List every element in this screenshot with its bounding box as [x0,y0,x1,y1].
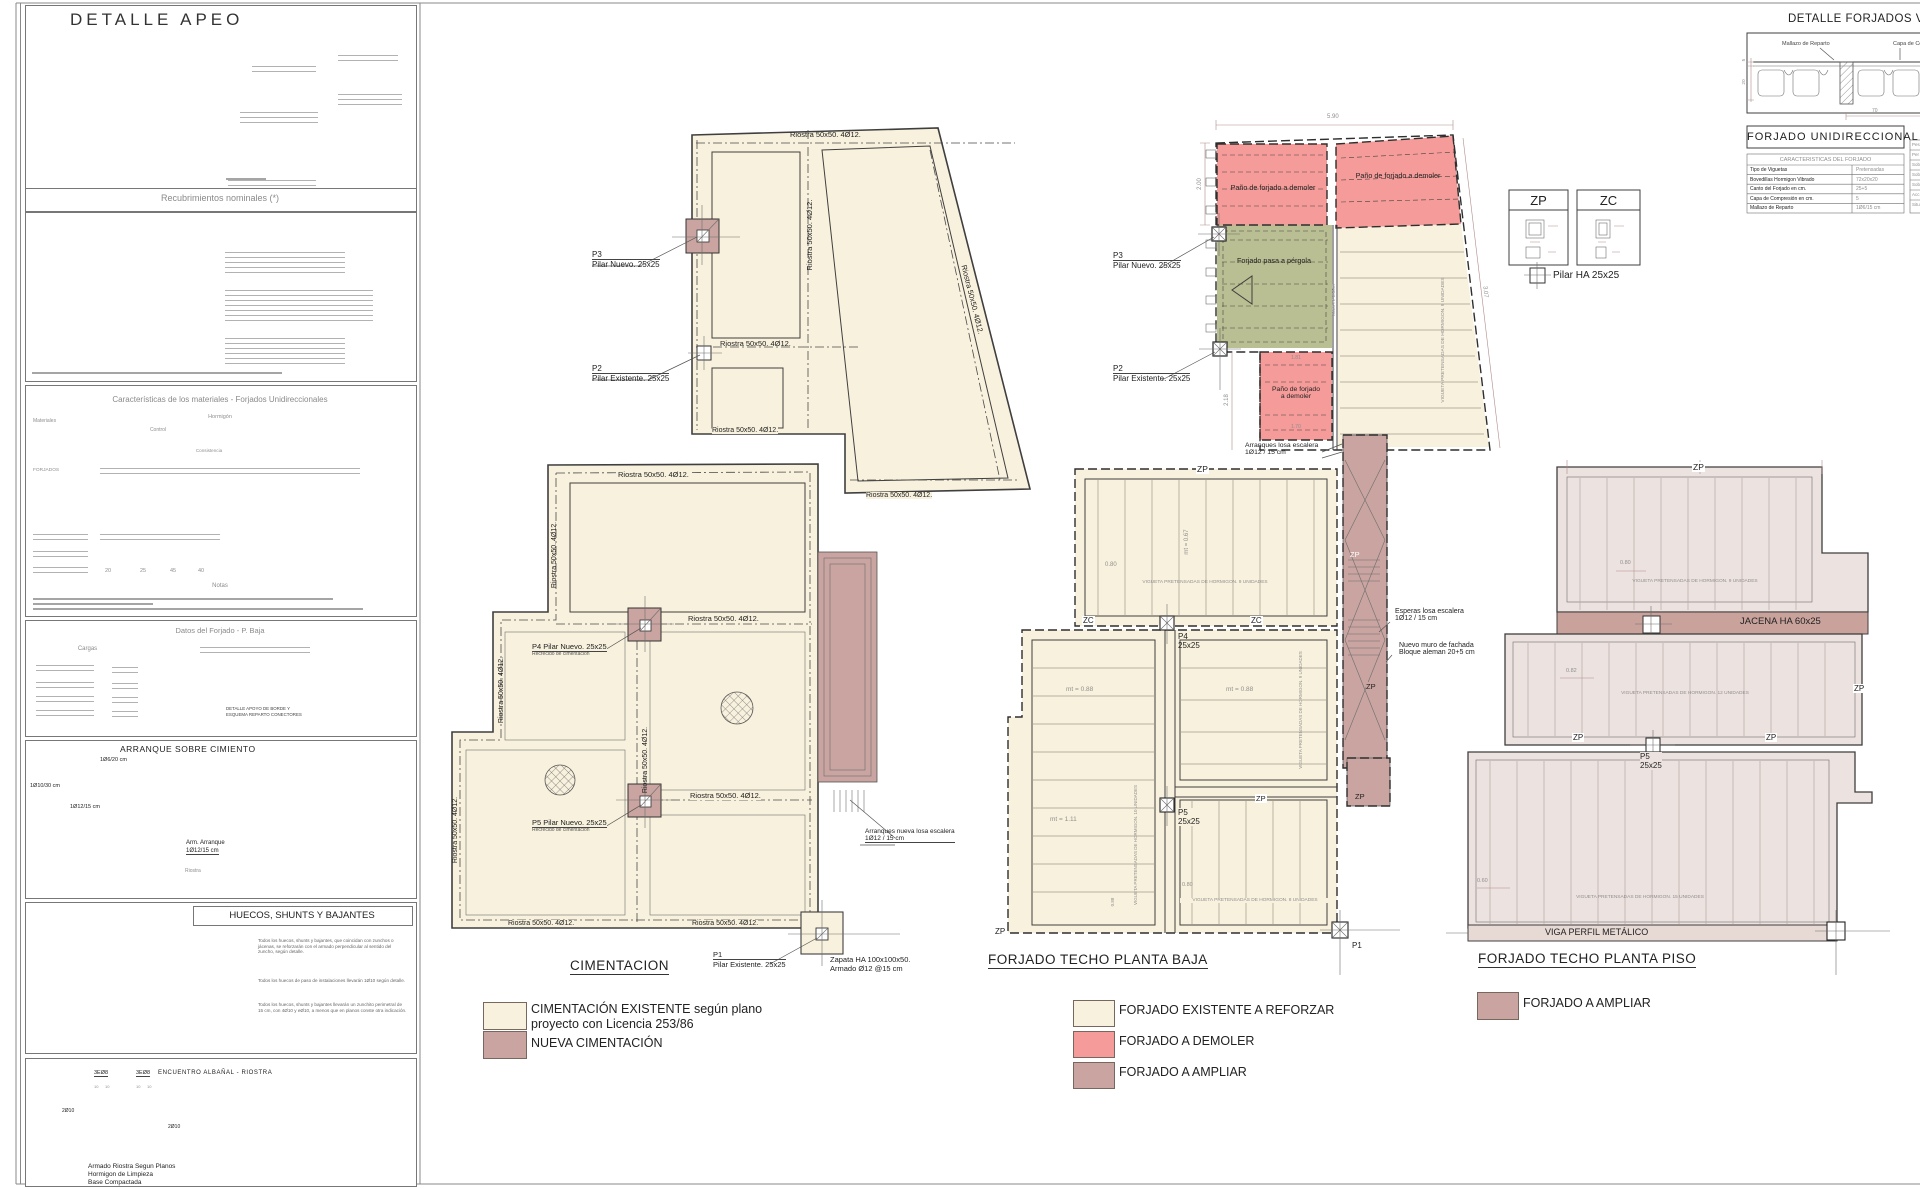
mt-label: mt = 0.88 [1066,686,1093,693]
legend-label: proyecto con Licencia 253/86 [531,1017,694,1031]
table-row-label: Tipo de Viguetas [1750,167,1787,173]
planta-piso-title: FORJADO TECHO PLANTA PISO [1478,951,1696,968]
illegible-cell [36,696,94,702]
pilar-id: P1 [713,950,786,959]
esperas-label: Esperas losa escalera 1Ø12 / 15 cm [1395,608,1464,622]
zp-marker: ZP [1853,684,1865,693]
detalle-apeo-title: DETALLE APEO [70,10,243,30]
table-row-label: Capa de Compresión en cm. [1750,196,1814,202]
pilar-id: P2 [592,364,669,373]
pilar-p2-label: P2 Pilar Existente. 25x25 [592,364,669,383]
pilar-desc: Pilar Nuevo. 25x25 [1113,260,1181,270]
riostra-label: Riostra 50x50. 4Ø12. [551,522,558,588]
zc-legend-title: ZC [1577,193,1640,208]
zp-marker: ZP [1255,794,1267,803]
encuentro-label: 3EØ8 [136,1070,150,1077]
legend-label: FORJADO A AMPLIAR [1119,1065,1247,1079]
pilar-p5-label: P5 Pilar Nuevo. 25x25 Recrecido de cimen… [532,818,607,833]
cargas-title: Cargas [30,646,145,652]
pilar-id: P4 [1178,632,1200,641]
zp-marker: ZP [994,927,1006,936]
legend-swatch-ampliar [1477,992,1519,1020]
arranque-label: 1Ø10/30 cm [30,783,60,789]
muro-fachada-label: Nuevo muro de fachada Bloque aleman 20+5… [1399,642,1475,656]
illegible-note [338,55,398,64]
pilar-p3-label: P3 Pilar Nuevo. 25x25 [1113,251,1181,270]
legend-label: FORJADO A DEMOLER [1119,1034,1254,1048]
legend-label: NUEVA CIMENTACIÓN [531,1036,663,1050]
planta-baja-lower [1008,435,1400,975]
cimentacion-lower-plan [452,464,900,966]
dim-label: 70 [1872,108,1878,114]
illegible-cell [36,665,94,675]
table-fragment: Sob [1912,182,1920,187]
pilar-desc: 25x25 [1640,761,1662,770]
arranques-text: Arranques nueva losa escalera [865,828,955,835]
table-fragment: Acc [1912,192,1920,197]
illegible-cell [33,567,88,577]
illegible-note [32,372,282,374]
encuentro-dim: 10 [136,1084,140,1089]
dim-label: 20 [1741,79,1747,85]
pilar-p2-label: P2 Pilar Existente. 25x25 [1113,364,1190,383]
illegible-note [226,178,266,180]
pilar-desc: Pilar Existente. 25x25 [592,373,669,383]
materiales-title: Características de los materiales - Forj… [25,395,415,404]
pergola-label: Forjado pasa a pérgola [1218,256,1330,265]
riostra-label: Riostra 50x50. 4Ø12. [642,727,649,793]
caracteristicas-title: CARACTERISTICAS DEL FORJADO [1747,157,1904,163]
huecos-note: Todos los huecos de paso de instalacione… [258,978,408,984]
riostra-label: Riostra 50x50. 4Ø12. [692,920,758,927]
vigueta-count-label: VIGUETA PRETENSADAS DE HORMIGON. 9 UNIDA… [1298,651,1303,768]
datos-caption: ESQUEMA REPARTO CONECTORES [226,712,302,717]
riostra-label: Riostra 50x50. 4Ø12. [690,791,761,800]
muro-label: Muro H: 1.80m [1331,284,1337,316]
vigueta-count-label: VIGUETA PRETENSADAS DE HORMIGON. 9 UNIDA… [1590,579,1800,584]
huecos-title: HUECOS, SHUNTS Y BAJANTES [193,910,411,921]
arranques-text: 1Ø12 / 15 cm [865,835,955,843]
viga-label: VIGA PERFIL METÁLICO [1545,927,1648,937]
arranques-losa-label: Arranques nueva losa escalera 1Ø12 / 15 … [865,828,955,843]
datos-caption: DETALLE APOYO DE BORDE Y [226,706,290,711]
illegible-note [33,598,333,600]
illegible-cell [33,534,88,542]
illegible-note [252,66,316,76]
legend-label: CIMENTACIÓN EXISTENTE según plano [531,1002,762,1016]
recubrimiento-val: 45 [170,568,176,574]
encuentro-dim: 10 [105,1084,109,1089]
illegible-note [240,112,318,126]
vigueta-count-label: VIGUETA PRETENSADAS DE HORMIGON. 15 UNID… [1535,895,1745,900]
table-fragment: Situ [1912,202,1920,207]
legend-swatch-reforzar [1073,1000,1115,1027]
jacena-label: JACENA HA 60x25 [1740,616,1821,627]
materiales-cell: FORJADOS [33,468,59,473]
pilar-desc: 25x25 [1178,817,1200,826]
table-row-label: Bovedillas Hormigon Vibrado [1750,177,1814,183]
demoler-text: a demoler [1260,393,1332,400]
pilar-p5-label: P5 25x25 [1640,752,1662,770]
demoler-label: Paño de forjado a demoler [1338,171,1458,180]
riostra-label: Riostra 50x50. 4Ø12. [790,130,861,139]
legend-swatch-ampliar [1073,1062,1115,1089]
table-row-value: Pretensadas [1856,167,1884,173]
zapata-text: Zapata HA 100x100x50. [830,955,910,964]
esperas-text: Esperas losa escalera [1395,608,1464,615]
materiales-col: Control [130,427,186,433]
drawing-sheet: { "left": { "apeo_title": "DETALLE APEO"… [0,0,1920,1189]
encuentro-label: 3EØ8 [94,1070,108,1077]
arranques-text: 1Ø12 / 15 cm [1245,449,1318,456]
table-row-label: Canto del Forjado en cm. [1750,186,1806,192]
muro-text: Nuevo muro de fachada [1399,642,1475,649]
zapata-label: Zapata HA 100x100x50. Armado Ø12 @15 cm [830,955,910,973]
zp-marker: ZP [1350,550,1360,559]
riostra-label: Riostra 50x50. 4Ø12. [498,657,505,723]
riostra-label: Riostra 50x50. 4Ø12. [805,200,814,271]
datos-forjado-title: Datos del Forjado - P. Baja [25,626,415,635]
mt-label: mt = 0.88 [1226,686,1253,693]
zp-marker: ZP [1366,682,1376,691]
zp-marker: ZP [1196,464,1209,474]
zp-marker: ZP [1765,733,1777,742]
table-fragment: Per [1912,152,1919,157]
muro-text: Bloque aleman 20+5 cm [1399,649,1475,656]
pilar-p1-label: P1 Pilar Existente. 25x25 [713,950,786,969]
detalle-forjados-title: DETALLE FORJADOS VIGUETAS [1788,13,1920,25]
esperas-text: 1Ø12 / 15 cm [1395,615,1464,622]
vigueta-count-label: VIGUETA PRETENSADAS DE HORMIGON. 9 UNIDA… [1100,580,1310,585]
pilar-desc: 25x25 [1178,641,1200,650]
legend-swatch-existente [483,1002,527,1030]
illegible-cell [100,468,360,476]
illegible-cell [33,551,88,559]
zapata-text: Armado Ø12 @15 cm [830,964,910,973]
dim-label: 0.82 [1566,668,1577,674]
pilar-desc: Pilar Existente. 25x25 [1113,373,1190,383]
riostra-label: Riostra 50x50. 4Ø12. [452,797,459,863]
forjado-unidireccional-title: FORJADO UNIDIRECCIONAL [1747,131,1904,143]
table-row-label: Mallazo de Reparto [1750,205,1793,211]
dim-label: 0.80 [1620,560,1631,566]
dim-label: 1.70 [1260,424,1332,430]
recubrimiento-val: 40 [198,568,204,574]
pilar-id: P5 [1178,808,1200,817]
table-row-value: 1Ø6/15 cm [1856,205,1880,211]
encuentro-callout: Armado Riostra Segun Planos [88,1163,175,1170]
zc-marker: ZC [1082,616,1095,625]
recubrimiento-val: 25 [140,568,146,574]
zp-marker: ZP [1692,462,1705,472]
encuentro-dim: 10 [147,1084,151,1089]
capa-label: Capa de Compresión [1893,41,1920,47]
mt-label: mt = 0.67 [1184,529,1190,555]
arranque-label: 1Ø6/20 cm [100,757,127,763]
demoler-label: Paño de forjado a demoler [1260,386,1332,400]
encuentro-box [25,1058,417,1187]
zp-legend-title: ZP [1509,193,1568,208]
notas-title: Notas [25,583,415,589]
riostra-label: Riostra 50x50. 4Ø12. [712,427,778,434]
illegible-cell [112,697,138,703]
encuentro-title: ENCUENTRO ALBAÑAL - RIOSTRA [158,1070,272,1076]
planta-baja-title: FORJADO TECHO PLANTA BAJA [988,952,1208,969]
table-fragment: Pes [1912,142,1920,147]
arranques-text: Arranques losa escalera [1245,442,1318,449]
riostra-label: Riostra 50x50. 4Ø12. [618,470,689,479]
pilar-id: P2 [1113,364,1190,373]
illegible-note [338,94,402,108]
riostra-label: Riostra 50x50. 4Ø12. [866,492,932,499]
zp-marker: ZP [1355,792,1365,801]
dim-label: 5 [1741,58,1747,61]
arranques-losa-label: Arranques losa escalera 1Ø12 / 15 cm [1245,442,1318,456]
illegible-cell [100,534,220,542]
pilar-p4-label: P4 Pilar Nuevo. 25x25 Recrecido de cimen… [532,642,607,657]
zc-marker: ZC [1250,616,1263,625]
dim-label: 0.60 [1477,878,1488,884]
illegible-note [225,252,345,276]
huecos-note: Todos los huecos, shunts y bajantes llev… [258,1002,408,1013]
arranque-label: Riostra [185,868,201,874]
vigueta-count-label: VIGUETA PRETENSADAS DE HORMIGON. 12 UNID… [1580,691,1790,696]
mt-label: mt = 1.11 [1050,816,1077,823]
cimentacion-title: CIMENTACION [570,958,669,975]
vigueta-count-label: VIGUETA PRETENSADAS DE HORMIGON. 10 UNID… [1133,785,1138,905]
legend-label: FORJADO A AMPLIAR [1523,996,1651,1010]
table-row-value: 25+5 [1856,186,1867,192]
dim-label: 2.00 [1197,178,1203,190]
dim-label: 1.81 [1260,355,1332,361]
huecos-note: Todos los huecos, shunts y bajantes, que… [258,938,408,955]
illegible-cell [112,667,138,673]
vigueta-count-label: VIGUETA PRETENSADAS DE HORMIGON. 9 UNIDA… [1440,277,1446,402]
legend-label: FORJADO EXISTENTE A REFORZAR [1119,1003,1334,1017]
pilar-p1-label: P1 [1352,941,1362,950]
materiales-col: Hormigón [130,414,310,420]
dim-label: 0.80 [1182,882,1193,888]
arranque-label: Arm. Arranque [186,840,225,846]
illegible-note [225,290,373,324]
riostra-label: Riostra 50x50. 4Ø12. [508,920,574,927]
mallazo-label: Mallazo de Reparto [1782,41,1830,47]
table-row-value: 5 [1856,196,1859,202]
materiales-col: Materiales [33,418,56,424]
pilar-desc: Pilar Nuevo. 25x25 [592,259,660,269]
encuentro-label: 2Ø10 [168,1124,180,1130]
dim-label: 2.18 [1224,394,1230,406]
illegible-note [225,338,345,366]
encuentro-callout: Base Compactada [88,1179,141,1186]
dim-label: 5.90 [1327,114,1339,120]
materiales-col: Consistencia [186,448,232,453]
cimentacion-upper-plan [592,128,1030,493]
pilar-id: P3 [1113,251,1181,260]
pilar-id: P5 [1640,752,1662,761]
pilar-p4-label: P4 25x25 [1178,632,1200,650]
legend-swatch-demoler [1073,1031,1115,1058]
encuentro-dim: 10 [94,1084,98,1089]
zp-marker: ZP [1572,733,1584,742]
recubrimiento-val: 20 [105,568,111,574]
table-fragment: Sob [1912,172,1920,177]
demoler-label: Paño de forjado a demoler [1219,183,1327,192]
illegible-cell [112,711,138,717]
pilar-p5-label: P5 25x25 [1178,808,1200,826]
arranque-label: 1Ø12/15 cm [186,848,219,855]
arranque-box [25,740,417,899]
illegible-cell [112,683,138,689]
riostra-label: Riostra 50x50. 4Ø12. [720,339,791,348]
dim-label: 0.80 [1105,562,1117,568]
encuentro-label: 2Ø10 [62,1108,74,1114]
pilar-desc: Pilar Existente. 25x25 [713,959,786,969]
table-fragment: Sob [1912,162,1920,167]
encuentro-callout: Hormigon de Limpieza [88,1171,153,1178]
illegible-note [33,603,153,605]
legend-swatch-nueva [483,1031,527,1059]
pilar-ha-label: Pilar HA 25x25 [1553,270,1619,281]
arranque-title: ARRANQUE SOBRE CIMIENTO [120,744,256,754]
illegible-cell [200,647,310,653]
arranque-label: 1Ø12/15 cm [70,804,100,810]
recubrimientos-title: Recubrimientos nominales (*) [25,193,415,203]
dim-label: 3.07 [1481,286,1488,299]
illegible-note [33,608,363,610]
table-row-value: 72x20x20 [1856,177,1878,183]
pilar-id: P3 [592,250,660,259]
pilar-p3-label: P3 Pilar Nuevo. 25x25 [592,250,660,269]
vigueta-count-label: VIGUETA PRETENSADAS DE HORMIGON. 8 UNIDA… [1180,898,1330,903]
demoler-text: Paño de forjado [1260,386,1332,393]
illegible-cell [36,710,94,720]
riostra-label: Riostra 50x50. 4Ø12. [688,614,759,623]
dim-label: 0.88 [1110,897,1115,906]
illegible-cell [36,682,94,688]
